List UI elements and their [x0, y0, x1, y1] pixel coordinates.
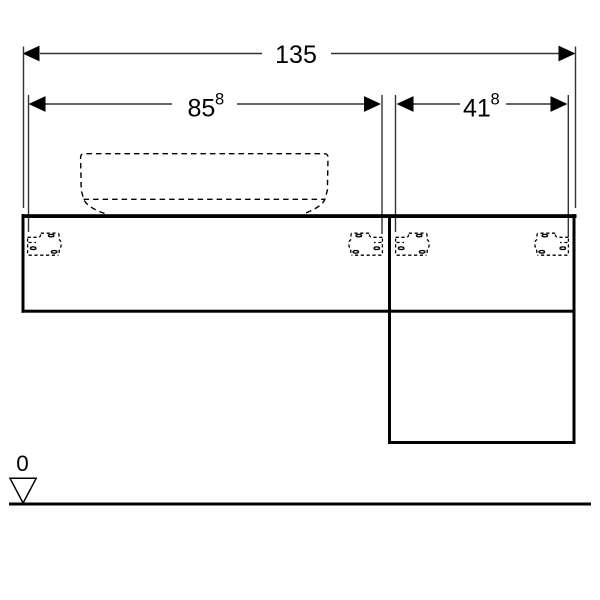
svg-text:8: 8 — [215, 91, 224, 109]
svg-text:85: 85 — [188, 95, 216, 123]
svg-text:0: 0 — [16, 451, 29, 476]
svg-text:8: 8 — [491, 91, 500, 109]
svg-text:135: 135 — [275, 41, 317, 69]
svg-text:41: 41 — [463, 95, 491, 123]
